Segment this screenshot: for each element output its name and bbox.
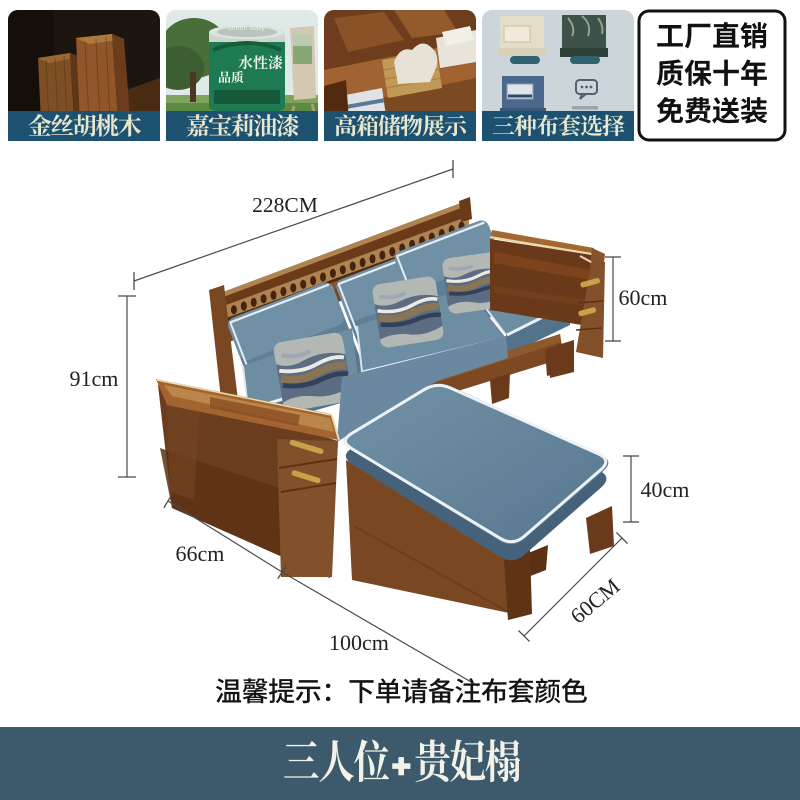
svg-text:60cm: 60cm — [619, 285, 668, 310]
svg-text:66cm: 66cm — [176, 541, 225, 566]
svg-text:40cm: 40cm — [641, 477, 690, 502]
svg-text:100cm: 100cm — [329, 630, 389, 655]
svg-text:91cm: 91cm — [70, 366, 119, 391]
svg-text:228CM: 228CM — [252, 193, 318, 217]
svg-text:Green wally: Green wally — [228, 25, 265, 32]
